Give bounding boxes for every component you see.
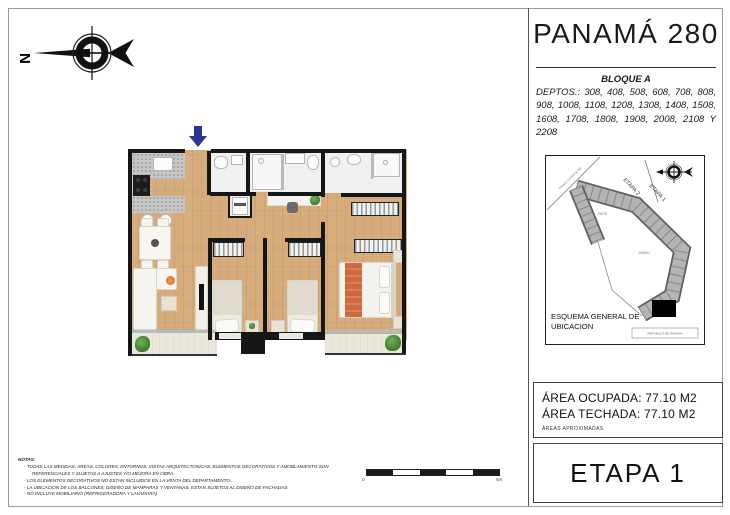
hall-plant bbox=[310, 195, 320, 205]
coffee-table bbox=[161, 296, 177, 311]
bedroom2-window bbox=[279, 333, 303, 339]
etapa-label: ETAPA 1 bbox=[570, 458, 686, 489]
etapa-box: ETAPA 1 bbox=[533, 443, 723, 503]
project-title-text: PANAMÁ 280 bbox=[533, 18, 719, 49]
balcony-plant-right bbox=[385, 335, 401, 351]
master-window bbox=[325, 330, 403, 333]
nightstand-plant bbox=[249, 323, 255, 329]
wall bbox=[321, 151, 325, 197]
wall bbox=[246, 151, 250, 195]
wall bbox=[402, 149, 406, 354]
balcony-rail bbox=[131, 354, 217, 356]
master-shower-drain bbox=[383, 160, 388, 165]
bedroom1-window bbox=[219, 333, 241, 339]
scale-segment bbox=[473, 470, 499, 475]
scale-segment bbox=[393, 470, 419, 475]
master-shower-tray bbox=[373, 153, 400, 177]
departments-list: DEPTOS.: 308, 408, 508, 608, 708, 808, 9… bbox=[536, 86, 716, 140]
notes-block: NOTAS: TODAS LAS MEDIDAS, AREAS, COLORES… bbox=[18, 457, 352, 498]
kitchen-peninsula bbox=[132, 196, 185, 213]
note-item: NO INCLUYE MOBILIARIO (REFRIGERADORA Y L… bbox=[18, 491, 352, 498]
wall bbox=[241, 332, 265, 354]
stove-burner bbox=[136, 188, 140, 192]
block-label: BLOQUE A bbox=[530, 74, 722, 85]
note-item: TODAS LAS MEDIDAS, AREAS, COLORES, ENTOR… bbox=[18, 464, 352, 478]
kitchen-sink bbox=[153, 157, 173, 171]
master-headboard bbox=[391, 262, 396, 318]
scale-segment bbox=[446, 470, 472, 475]
scale-bar bbox=[366, 469, 500, 476]
wall bbox=[341, 193, 406, 197]
compass-north-letter: N bbox=[16, 53, 33, 64]
table-centerpiece bbox=[151, 239, 159, 247]
column-divider bbox=[528, 8, 529, 506]
shower-drain bbox=[258, 158, 264, 164]
shower-tray bbox=[252, 154, 282, 190]
site-plan: PRIMO GERBOLINI ETAPA 2 ETAPA 1 PATIO JA… bbox=[546, 156, 702, 342]
notes-list: TODAS LAS MEDIDAS, AREAS, COLORES, ENTOR… bbox=[18, 464, 352, 498]
stove-burner bbox=[143, 188, 147, 192]
note-item: LOS ELEMENTOS DECORATIVOS NO ESTAN INCLU… bbox=[18, 478, 352, 485]
master-bed-runner bbox=[345, 263, 362, 317]
balcony-plant-left bbox=[135, 336, 150, 352]
north-compass-icon: N bbox=[12, 22, 137, 84]
floor-plan bbox=[127, 148, 411, 361]
bedroom2-closet bbox=[288, 242, 321, 257]
master-toilet bbox=[347, 154, 361, 165]
balcony-rail bbox=[325, 353, 406, 355]
stove-burner bbox=[143, 178, 147, 182]
wall bbox=[207, 151, 211, 195]
title-divider bbox=[536, 67, 716, 68]
scale-end-label: 5m bbox=[496, 477, 502, 482]
wall bbox=[285, 238, 321, 242]
wall bbox=[212, 238, 245, 242]
stove-burner bbox=[136, 178, 140, 182]
scale-start-label: 0 bbox=[362, 477, 365, 482]
bed2-blanket bbox=[288, 281, 317, 315]
diagram-caption-2: UBICACION bbox=[551, 322, 593, 331]
sofa-main bbox=[133, 268, 157, 330]
scale-segment bbox=[420, 470, 446, 475]
flower-pot bbox=[166, 276, 175, 285]
bath-vanity bbox=[285, 153, 305, 164]
wall bbox=[208, 238, 212, 340]
entry-arrow-icon bbox=[189, 126, 207, 147]
area-roofed: ÁREA TECHADA: 77.10 M2 bbox=[542, 407, 696, 421]
bed1-blanket bbox=[213, 281, 241, 315]
wall bbox=[211, 149, 406, 153]
shower-glass bbox=[282, 154, 284, 190]
location-diagram: PRIMO GERBOLINI ETAPA 2 ETAPA 1 PATIO JA… bbox=[545, 155, 705, 345]
master-pillow bbox=[379, 266, 390, 288]
patio-label: PATIO bbox=[598, 212, 608, 216]
plan-sheet: { "title_block": { "title": "PANAMÁ 280"… bbox=[0, 0, 730, 515]
jardin-label: JARDIN bbox=[638, 251, 650, 255]
areas-box: ÁREA OCUPADA: 77.10 M2 ÁREA TECHADA: 77.… bbox=[533, 382, 723, 438]
avenue-label: REPUBLICA DE PANAMA bbox=[647, 332, 682, 336]
area-occupied: ÁREA OCUPADA: 77.10 M2 bbox=[542, 391, 697, 405]
wall bbox=[128, 149, 185, 153]
notes-heading: NOTAS: bbox=[18, 457, 352, 464]
wall bbox=[321, 222, 325, 340]
scale-segment bbox=[367, 470, 393, 475]
washer bbox=[232, 197, 248, 215]
note-item: LA UBICACION DE LOS BALCONES, DISEÑO DE … bbox=[18, 485, 352, 492]
wall bbox=[128, 149, 132, 356]
project-title: PANAMÁ 280 bbox=[530, 18, 722, 50]
master-pillow bbox=[379, 292, 390, 314]
desk-chair bbox=[287, 202, 298, 213]
washer-door bbox=[234, 203, 246, 206]
wall bbox=[263, 238, 267, 340]
guest-toilet bbox=[214, 156, 228, 169]
highlighted-unit bbox=[652, 300, 676, 317]
diagram-caption-1: ESQUEMA GENERAL DE bbox=[551, 312, 639, 321]
wall bbox=[210, 192, 256, 196]
areas-note: ÁREAS APROXIMADAS bbox=[542, 426, 604, 432]
mini-compass-icon bbox=[656, 161, 693, 183]
master-sink bbox=[330, 157, 340, 167]
master-closet-1 bbox=[351, 202, 399, 216]
guest-sink bbox=[231, 155, 243, 165]
toilet bbox=[307, 155, 319, 170]
tv bbox=[199, 284, 204, 310]
wall bbox=[268, 192, 321, 196]
bedroom1-closet bbox=[213, 242, 244, 257]
living-window bbox=[131, 330, 215, 333]
